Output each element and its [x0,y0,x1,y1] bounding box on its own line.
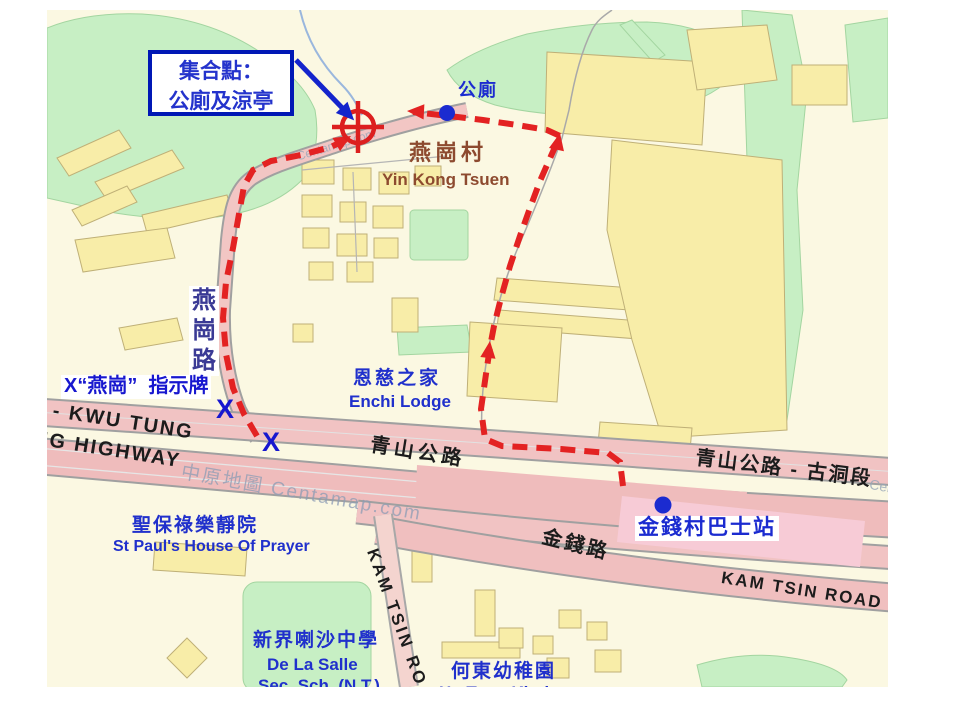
arrowhead [407,103,425,119]
bus-stop-dot [655,497,672,514]
route-via-yin-kong-road [223,139,347,436]
slide: { "map": {"left":47,"top":10,"width":841… [0,0,960,720]
arrowhead [480,340,497,359]
route-from-bus-stop [413,112,623,486]
map-image: 公廁燕崗村Yin Kong Tsuen恩慈之家Enchi Lodge聖保祿樂靜院… [47,10,888,687]
meeting-point-callout: 集合點： 公廁及涼亭 [148,50,294,116]
callout-line2: 公廁及涼亭 [152,87,290,117]
public-toilet-dot [439,105,455,121]
callout-line1: 集合點： [152,57,290,87]
